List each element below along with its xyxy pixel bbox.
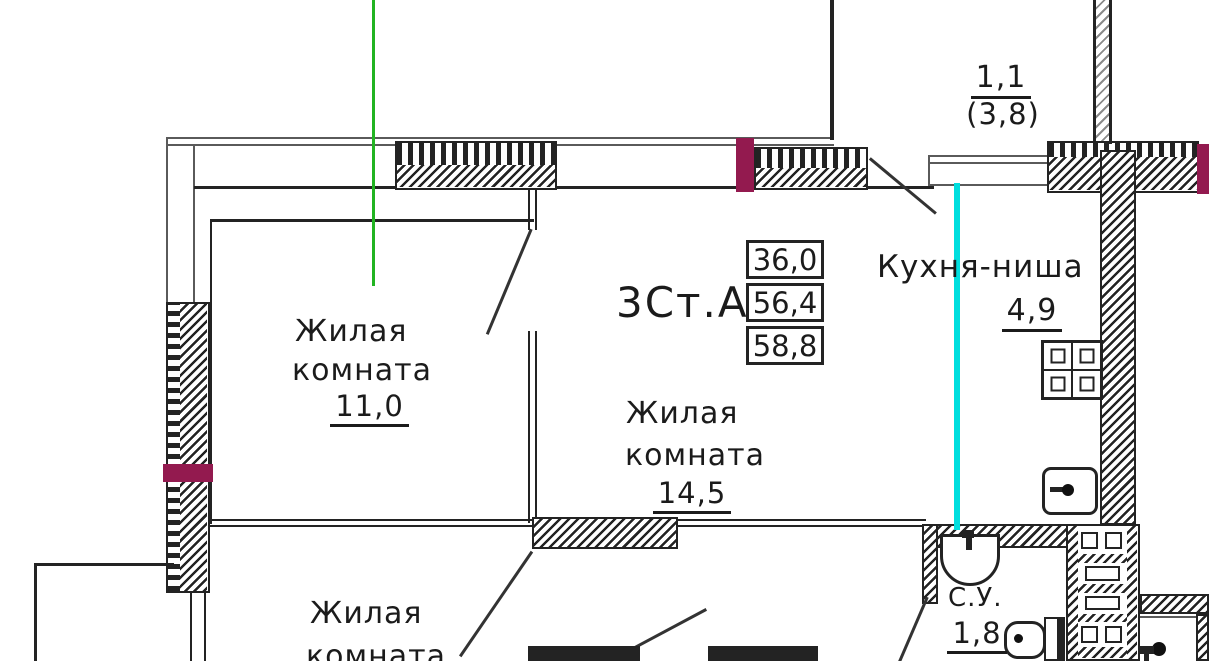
room2-area-label: 14,5 bbox=[642, 476, 742, 510]
kitchen-area-label: 4,9 bbox=[995, 293, 1069, 328]
room2-name-line1: Жилая bbox=[626, 396, 738, 431]
unit-type-label: 3Ст.А bbox=[616, 278, 749, 327]
left-wall-pier bbox=[163, 464, 213, 482]
room2-area-value: 14,5 bbox=[653, 476, 732, 514]
vent-divider bbox=[1078, 584, 1127, 593]
toilet-tank-back bbox=[1057, 617, 1065, 661]
area-cell-total-with-balcony: 58,8 bbox=[746, 326, 824, 365]
bathroom-left-wall bbox=[922, 524, 938, 604]
unit-areas-table: 36,0 56,4 58,8 bbox=[746, 240, 824, 369]
upper-shaft-wall-hatch bbox=[1096, 0, 1109, 144]
room3-name-line1: Жилая bbox=[310, 596, 422, 631]
area-cell-total: 56,4 bbox=[746, 283, 824, 322]
faucet-stem bbox=[1144, 654, 1149, 661]
vent-divider bbox=[1078, 554, 1127, 563]
faucet-body bbox=[1140, 646, 1154, 654]
room1-area-label: 11,0 bbox=[322, 389, 417, 423]
room1-name-line2: комната bbox=[292, 353, 432, 388]
vent-divider bbox=[1078, 647, 1127, 658]
window-room1 bbox=[395, 141, 557, 190]
vent-duct-opening bbox=[1081, 626, 1098, 643]
window-sill-hatch bbox=[756, 168, 866, 187]
hall-wall-h bbox=[1140, 594, 1209, 614]
facade-pier bbox=[736, 138, 754, 192]
stove-icon bbox=[1041, 340, 1103, 400]
bathroom-area-value: 1,8 bbox=[947, 616, 1006, 654]
area-cell-living: 36,0 bbox=[746, 240, 824, 279]
vent-shaft-wall bbox=[1127, 526, 1137, 659]
stove-burner bbox=[1043, 370, 1072, 398]
left-wall-lower-line bbox=[190, 592, 192, 661]
partition-wall bbox=[535, 331, 537, 523]
room1-area-value: 11,0 bbox=[330, 389, 409, 427]
axis-line-green bbox=[372, 0, 375, 286]
balcony-outline-h bbox=[34, 563, 174, 566]
kitchen-window-line bbox=[928, 184, 1054, 186]
vent-duct-opening bbox=[1081, 532, 1098, 549]
left-wall-block bbox=[166, 302, 210, 593]
partition-wall bbox=[535, 190, 537, 230]
vent-chamber bbox=[1085, 566, 1120, 581]
bath-sink-tap-stem bbox=[966, 538, 972, 550]
balcony-area-alt-label: (3,8) bbox=[948, 97, 1058, 131]
window-sill-hatch bbox=[397, 165, 555, 187]
upper-shaft-wall-line bbox=[1109, 0, 1112, 144]
kitchen-right-wall bbox=[1100, 150, 1136, 525]
bottom-window-bar bbox=[528, 646, 640, 661]
axis-line-cyan bbox=[954, 183, 960, 530]
balcony-area-value: 1,1 bbox=[971, 60, 1032, 99]
vent-shaft-icon bbox=[1066, 524, 1140, 661]
vent-duct-opening bbox=[1105, 626, 1122, 643]
toilet-icon bbox=[1004, 621, 1046, 659]
toilet-flush-dot bbox=[1014, 634, 1023, 643]
upper-unit-wall-stub bbox=[830, 0, 834, 140]
stove-burner bbox=[1072, 342, 1101, 370]
balcony-outline-v bbox=[34, 563, 37, 661]
window-glazing bbox=[397, 143, 555, 165]
outer-wall-top-line bbox=[166, 137, 834, 139]
left-wall-line bbox=[193, 144, 195, 307]
kitchen-window-jamb bbox=[928, 155, 930, 186]
interior-wall-block bbox=[532, 517, 678, 549]
vent-shaft-wall bbox=[1068, 526, 1078, 659]
hall-wall-v bbox=[1196, 614, 1209, 661]
bathroom-door-swing bbox=[898, 597, 928, 661]
left-wall-hatch bbox=[180, 304, 207, 591]
floor-plan: 3Ст.А 36,0 56,4 58,8 1,1 (3,8) Кухня-ниш… bbox=[0, 0, 1209, 661]
kitchen-sink-tap-head bbox=[1062, 484, 1074, 496]
room3-name-line2: комната bbox=[306, 639, 446, 661]
vent-chamber bbox=[1085, 596, 1120, 610]
left-wall-line bbox=[166, 137, 168, 307]
right-edge-pier bbox=[1197, 144, 1209, 194]
bottom-window-bar bbox=[708, 646, 818, 661]
balcony-area-label: 1,1 bbox=[958, 60, 1044, 95]
partition-wall bbox=[528, 190, 530, 230]
vent-duct-opening bbox=[1105, 532, 1122, 549]
kitchen-window-line bbox=[928, 155, 1054, 157]
vent-divider bbox=[1078, 614, 1127, 622]
window-room2 bbox=[754, 147, 868, 190]
room1-name-line1: Жилая bbox=[295, 314, 407, 349]
bathroom-area-label: 1,8 bbox=[946, 616, 1008, 650]
stove-burner bbox=[1072, 370, 1101, 398]
door-swing-room1 bbox=[486, 229, 532, 335]
faucet-icon bbox=[1152, 642, 1166, 656]
partition-wall bbox=[528, 331, 530, 523]
kitchen-area-value: 4,9 bbox=[1002, 293, 1063, 332]
bath-sink-tap bbox=[962, 530, 974, 538]
kitchen-window-line bbox=[928, 162, 1054, 164]
window-glazing bbox=[756, 149, 866, 168]
kitchen-name-label: Кухня-ниша bbox=[877, 249, 1084, 285]
door-swing-room3 bbox=[459, 551, 533, 657]
room2-name-line2: комната bbox=[625, 438, 765, 473]
upper-shaft-wall-line bbox=[1093, 0, 1096, 144]
bathroom-name-label: С.У. bbox=[948, 583, 1003, 613]
left-wall-lower-line bbox=[204, 592, 206, 661]
left-wall-insulation bbox=[168, 304, 180, 591]
stove-burner bbox=[1043, 342, 1072, 370]
